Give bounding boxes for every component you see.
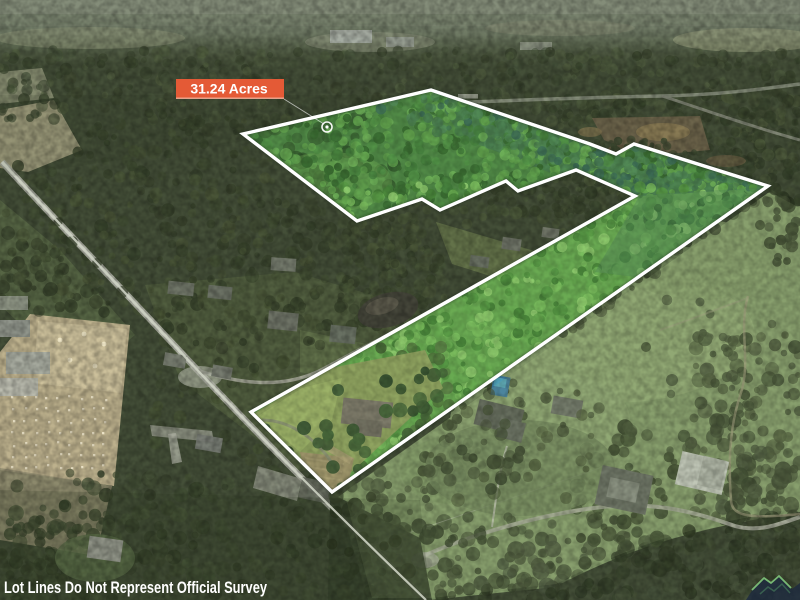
svg-text:Lot Lines Do Not Represent Off: Lot Lines Do Not Represent Official Surv…	[4, 578, 267, 597]
svg-text:31.24 Acres: 31.24 Acres	[190, 81, 268, 97]
